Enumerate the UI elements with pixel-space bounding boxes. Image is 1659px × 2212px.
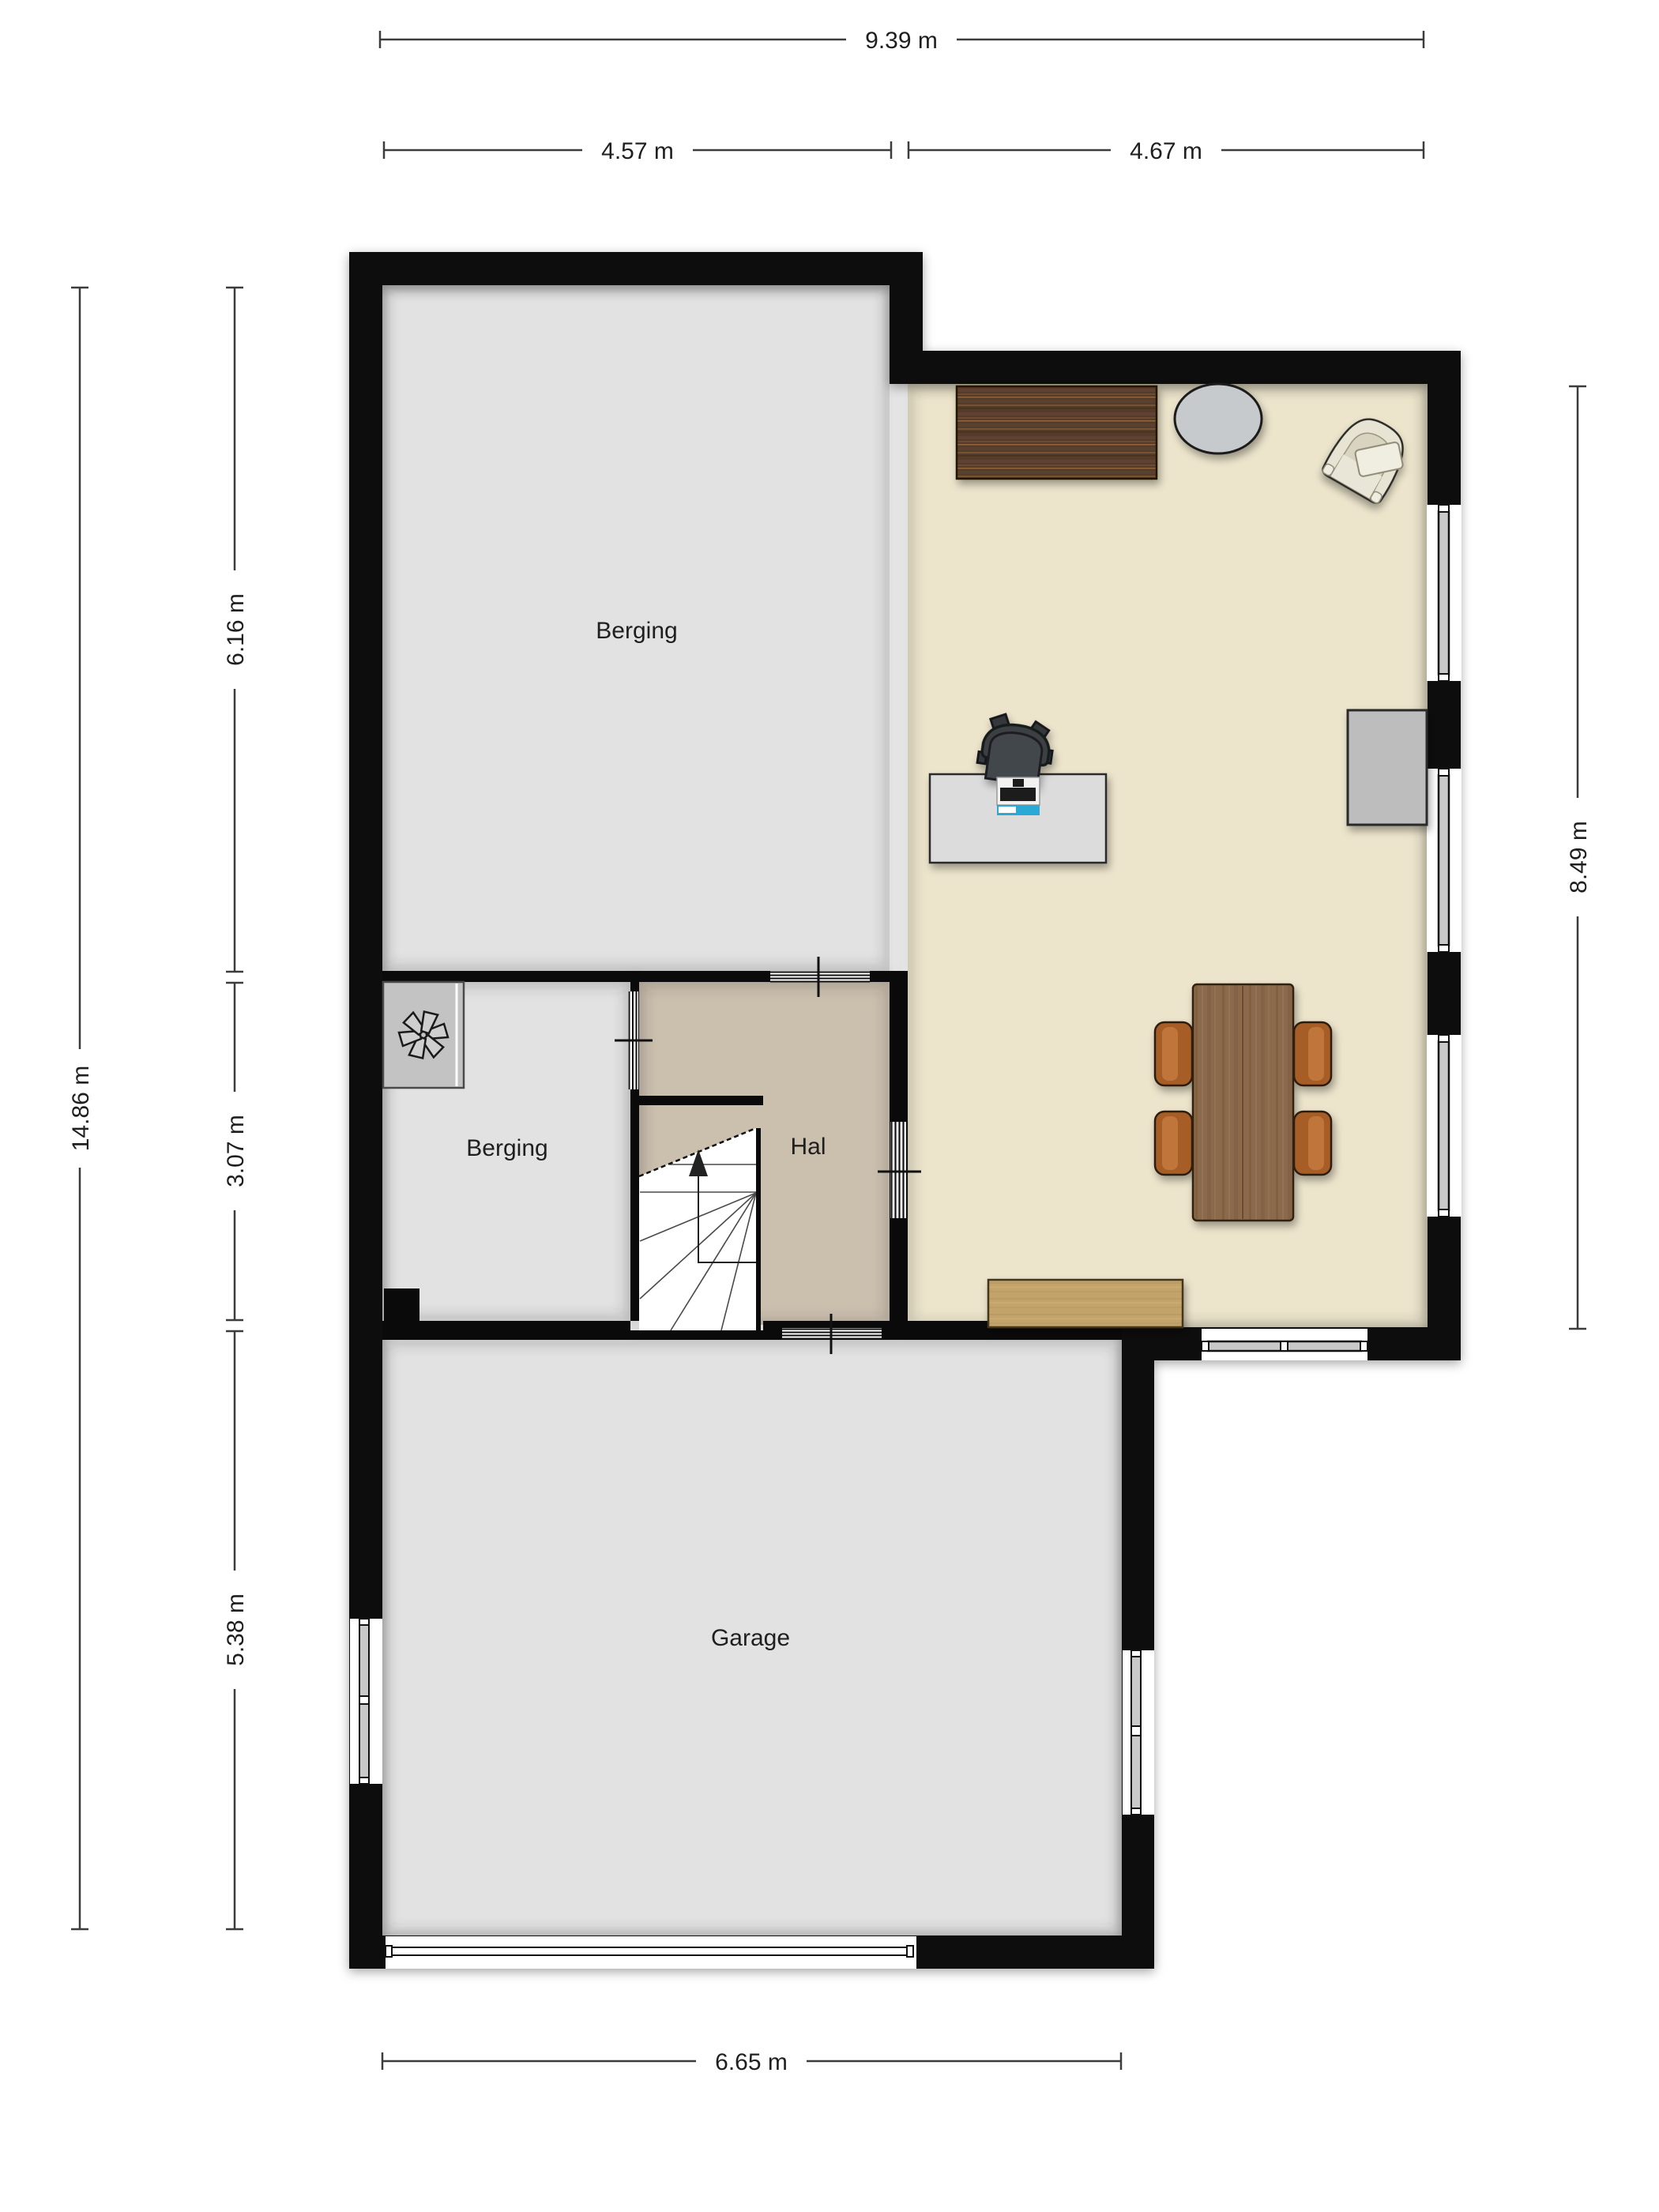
svg-text:8.49 m: 8.49 m	[1566, 821, 1592, 893]
svg-text:Berging: Berging	[596, 618, 677, 644]
svg-text:Hal: Hal	[790, 1134, 826, 1160]
svg-text:4.67 m: 4.67 m	[1130, 138, 1202, 164]
svg-text:5.38 m: 5.38 m	[223, 1593, 249, 1666]
svg-text:6.65 m: 6.65 m	[715, 2049, 788, 2075]
svg-text:9.39 m: 9.39 m	[865, 28, 938, 54]
svg-text:Garage: Garage	[711, 1625, 790, 1651]
svg-text:14.86 m: 14.86 m	[68, 1066, 94, 1151]
svg-text:4.57 m: 4.57 m	[601, 138, 674, 164]
svg-text:6.16 m: 6.16 m	[223, 593, 249, 666]
svg-text:Berging: Berging	[466, 1135, 547, 1161]
svg-text:3.07 m: 3.07 m	[223, 1115, 249, 1187]
